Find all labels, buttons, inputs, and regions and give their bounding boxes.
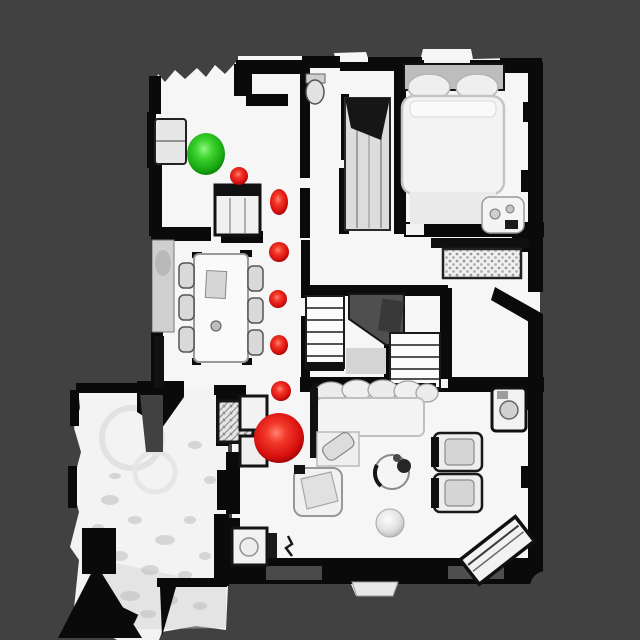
fridge (155, 119, 186, 164)
front-step (352, 582, 398, 596)
wardrobe (345, 98, 390, 230)
waypoint-dot (270, 335, 288, 355)
radiator (431, 238, 529, 278)
entry-bench (215, 185, 260, 235)
waypoint-dot (230, 167, 248, 185)
armchair (294, 465, 342, 516)
waypoint-dot (270, 189, 288, 215)
speaker-cabinet (492, 388, 526, 431)
waypoint-dot (269, 242, 289, 262)
toilet (306, 74, 325, 104)
dining-table (192, 250, 252, 365)
start-sphere (187, 133, 225, 175)
scene-viewport (0, 0, 640, 640)
waypoint-dot (271, 381, 291, 401)
floor-ball (376, 509, 404, 537)
coffee-table (375, 454, 411, 489)
goal-sphere (254, 413, 304, 463)
waypoint-dot (269, 290, 287, 308)
bedroom-desk (482, 197, 524, 233)
floor-plan-canvas (0, 0, 640, 640)
